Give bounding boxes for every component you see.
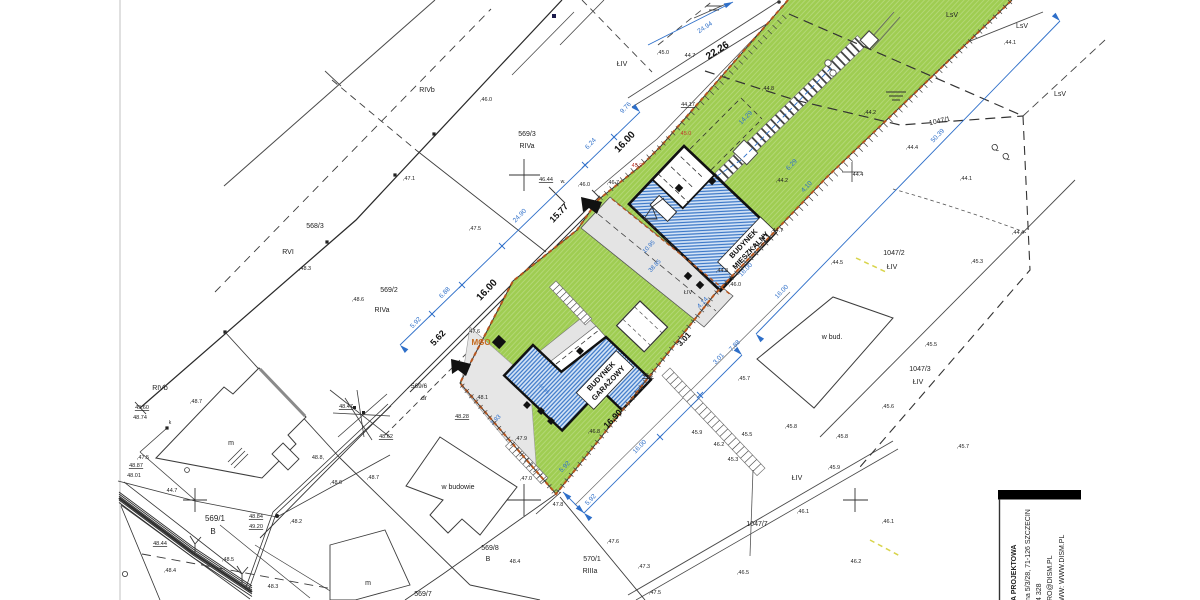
svg-text:48.3: 48.3 — [268, 584, 279, 590]
svg-text:ŁIV: ŁIV — [792, 475, 803, 482]
svg-text:47.8: 47.8 — [553, 502, 564, 508]
svg-text:m: m — [365, 580, 371, 587]
svg-text:,47.5: ,47.5 — [649, 590, 661, 596]
svg-text:,47.5: ,47.5 — [137, 455, 149, 461]
svg-text:1047/2: 1047/2 — [883, 250, 905, 257]
svg-text:LsV: LsV — [1054, 91, 1066, 98]
svg-text:568/3: 568/3 — [306, 223, 324, 230]
svg-text:569/7: 569/7 — [414, 591, 432, 598]
svg-text:,45.7: ,45.7 — [957, 444, 969, 450]
svg-text:,46.8: ,46.8 — [588, 429, 600, 435]
svg-text:,45.9: ,45.9 — [828, 465, 840, 471]
svg-text:,48.6: ,48.6 — [330, 480, 342, 486]
svg-text:,48.4: ,48.4 — [164, 568, 176, 574]
svg-text:,44.4: ,44.4 — [1012, 230, 1024, 236]
svg-text:,48.6: ,48.6 — [352, 297, 364, 303]
svg-text:,44.6: ,44.6 — [752, 243, 764, 249]
svg-text:,46.0: ,46.0 — [480, 97, 492, 103]
svg-text:,45.0: ,45.0 — [657, 50, 669, 56]
svg-text:,44.2: ,44.2 — [776, 178, 788, 184]
svg-text:,44.7: ,44.7 — [771, 228, 783, 234]
svg-text:569/3: 569/3 — [518, 131, 536, 138]
svg-text:570/1: 570/1 — [583, 556, 601, 563]
svg-text:,48.3: ,48.3 — [299, 266, 311, 272]
svg-text:RO@DISM.PL: RO@DISM.PL — [1047, 555, 1054, 600]
svg-text:LsV: LsV — [946, 12, 958, 19]
svg-text:44.7: 44.7 — [167, 488, 178, 494]
svg-text:,44.2: ,44.2 — [864, 110, 876, 116]
svg-text:w.: w. — [561, 179, 566, 185]
svg-text:LsV: LsV — [1016, 23, 1028, 30]
svg-text:RIVb: RIVb — [419, 87, 435, 94]
svg-text:w budowie: w budowie — [440, 484, 474, 491]
svg-text:,44.8: ,44.8 — [716, 268, 728, 274]
svg-text:48.8,: 48.8, — [312, 455, 325, 461]
svg-text:,48.5: ,48.5 — [222, 557, 234, 563]
svg-text:48.62: 48.62 — [379, 434, 393, 440]
svg-text:ŁIV: ŁIV — [617, 61, 628, 68]
svg-text:45.5: 45.5 — [742, 432, 753, 438]
svg-text:48.84: 48.84 — [249, 514, 263, 520]
svg-text:45.3: 45.3 — [728, 457, 739, 463]
svg-text:44.4: 44.4 — [853, 172, 864, 178]
svg-text:A PROJEKTOWA: A PROJEKTOWA — [1011, 545, 1018, 600]
svg-text:MGO: MGO — [471, 338, 490, 347]
svg-text:,47.0: ,47.0 — [520, 476, 532, 482]
svg-text:,48.7: ,48.7 — [190, 399, 202, 405]
svg-text:46.2: 46.2 — [714, 442, 725, 448]
svg-text:45.9: 45.9 — [632, 163, 643, 169]
svg-text:,48.2: ,48.2 — [290, 519, 302, 525]
svg-text:,46.1: ,46.1 — [797, 509, 809, 515]
svg-text:,47.5: ,47.5 — [469, 226, 481, 232]
svg-text:,45.6: ,45.6 — [882, 404, 894, 410]
svg-text:WW: WWW.DISM.PL: WW: WWW.DISM.PL — [1059, 535, 1066, 600]
svg-text:569/6: 569/6 — [411, 383, 428, 390]
svg-text:ŁIV: ŁIV — [684, 290, 693, 296]
svg-text:569/2: 569/2 — [380, 287, 398, 294]
svg-text:48.4: 48.4 — [510, 559, 521, 565]
svg-text:569/8: 569/8 — [481, 545, 499, 552]
svg-text:48.01: 48.01 — [127, 473, 141, 479]
svg-text:4 328: 4 328 — [1036, 583, 1043, 600]
svg-text:,45.3: ,45.3 — [971, 259, 983, 265]
svg-text:48.87: 48.87 — [129, 463, 143, 469]
svg-text:na 5/3/28, 71-126 SZCZECIN: na 5/3/28, 71-126 SZCZECIN — [1025, 509, 1032, 600]
svg-text:46.44: 46.44 — [539, 177, 553, 183]
svg-text:48.44: 48.44 — [153, 541, 167, 547]
svg-text:46.2: 46.2 — [643, 373, 654, 379]
svg-text:w bud.: w bud. — [821, 334, 843, 341]
svg-text:49.20: 49.20 — [249, 524, 263, 530]
svg-text:,48.1: ,48.1 — [476, 395, 488, 401]
svg-text:,47.6: ,47.6 — [468, 329, 480, 335]
svg-text:44.17: 44.17 — [681, 102, 695, 108]
svg-text:,44.1: ,44.1 — [1004, 40, 1016, 46]
svg-text:,46.5: ,46.5 — [737, 570, 749, 576]
svg-text:1047/7: 1047/7 — [746, 521, 768, 528]
svg-text:,44.5: ,44.5 — [831, 260, 843, 266]
svg-text:,47.3: ,47.3 — [638, 564, 650, 570]
svg-text:,46.0: ,46.0 — [578, 182, 590, 188]
svg-text:46.2: 46.2 — [851, 559, 862, 565]
svg-text:,45.5: ,45.5 — [925, 342, 937, 348]
svg-text:,46.7: ,46.7 — [607, 180, 619, 186]
svg-text:dr: dr — [421, 395, 428, 402]
svg-text:48.28: 48.28 — [455, 414, 469, 420]
svg-text:RIVa: RIVa — [374, 307, 389, 314]
svg-text:,44.8: ,44.8 — [762, 86, 774, 92]
svg-text:44.7: 44.7 — [685, 53, 696, 59]
svg-text:m: m — [228, 440, 234, 447]
svg-text:B: B — [210, 527, 215, 536]
svg-text:RVI: RVI — [282, 249, 294, 256]
svg-text:1047/3: 1047/3 — [909, 366, 931, 373]
svg-text:,47.6: ,47.6 — [607, 539, 619, 545]
svg-text:,48.7: ,48.7 — [367, 475, 379, 481]
svg-text:,45.8: ,45.8 — [785, 424, 797, 430]
svg-text:ŁIV: ŁIV — [913, 379, 924, 386]
svg-text:,44.4: ,44.4 — [906, 145, 918, 151]
svg-text:ŁIV: ŁIV — [887, 264, 898, 271]
svg-text:48.74: 48.74 — [133, 415, 147, 421]
svg-text:B: B — [486, 556, 491, 563]
svg-text:,45.8: ,45.8 — [836, 434, 848, 440]
svg-text:,44.1: ,44.1 — [960, 176, 972, 182]
svg-text:45.0: 45.0 — [681, 131, 692, 137]
svg-text:RIVb: RIVb — [152, 385, 168, 392]
svg-text:569/1: 569/1 — [205, 514, 226, 523]
svg-text:48.47: 48.47 — [339, 404, 353, 410]
svg-text:,46.0: ,46.0 — [729, 282, 741, 288]
svg-text:,47.9: ,47.9 — [515, 436, 527, 442]
svg-text:,46.1: ,46.1 — [882, 519, 894, 525]
svg-text:45.9: 45.9 — [692, 430, 703, 436]
svg-text:,45.7: ,45.7 — [738, 376, 750, 382]
svg-text:RIIIa: RIIIa — [583, 568, 598, 575]
svg-text:49.60: 49.60 — [135, 405, 149, 411]
svg-text:,47.1: ,47.1 — [403, 176, 415, 182]
svg-text:RIVa: RIVa — [519, 143, 534, 150]
